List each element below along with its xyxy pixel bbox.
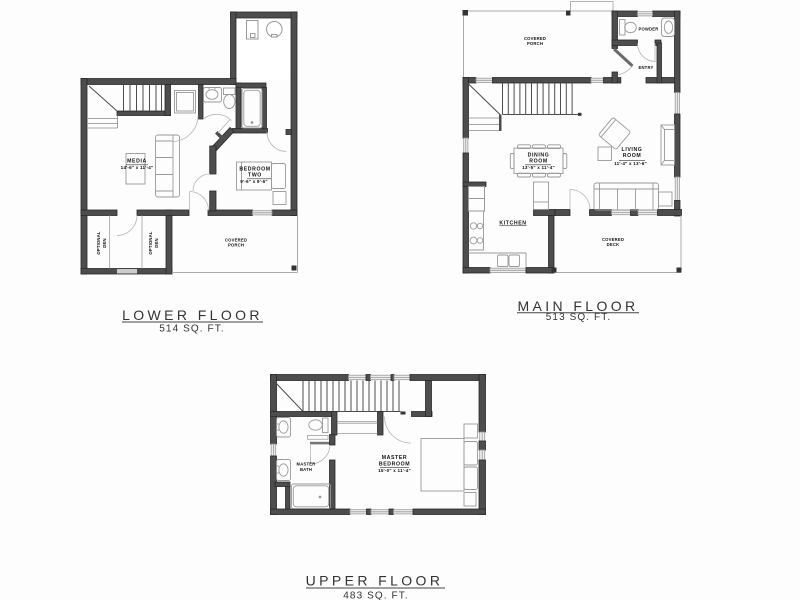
svg-text:MEDIA: MEDIA (127, 159, 147, 165)
svg-text:MASTER: MASTER (297, 462, 316, 467)
svg-text:PORCH: PORCH (228, 243, 244, 248)
svg-text:13'-5" x 11'-4": 13'-5" x 11'-4" (522, 165, 555, 170)
svg-text:TWO: TWO (248, 173, 262, 179)
svg-text:MASTER: MASTER (382, 455, 408, 461)
svg-text:ROOM: ROOM (529, 159, 548, 165)
svg-text:514 SQ. FT.: 514 SQ. FT. (159, 324, 224, 335)
svg-text:PORCH: PORCH (527, 41, 543, 46)
svg-text:DEN: DEN (102, 238, 107, 247)
svg-text:14'-6" x 11'-4": 14'-6" x 11'-4" (121, 165, 154, 170)
svg-text:LOWER FLOOR: LOWER FLOOR (122, 307, 263, 323)
svg-text:BEDROOM: BEDROOM (379, 462, 410, 468)
svg-text:ROOM: ROOM (623, 153, 642, 159)
svg-text:9'-6" x 9'-6": 9'-6" x 9'-6" (240, 179, 268, 184)
svg-text:DEN: DEN (154, 238, 159, 247)
svg-text:513 SQ. FT.: 513 SQ. FT. (546, 312, 611, 323)
svg-text:BATH: BATH (300, 467, 312, 472)
svg-text:POWDER: POWDER (638, 27, 658, 32)
svg-text:11'-4" x 13'-6": 11'-4" x 13'-6" (614, 161, 647, 166)
svg-text:OPTIONAL: OPTIONAL (148, 231, 153, 254)
svg-text:OPTIONAL: OPTIONAL (96, 231, 101, 254)
svg-text:483 SQ. FT.: 483 SQ. FT. (343, 591, 408, 600)
svg-text:KITCHEN: KITCHEN (499, 221, 526, 227)
svg-text:DECK: DECK (607, 242, 620, 247)
svg-text:ENTRY: ENTRY (638, 65, 653, 70)
svg-text:UPPER FLOOR: UPPER FLOOR (306, 573, 444, 589)
svg-text:15'-0" x 11'-4": 15'-0" x 11'-4" (378, 468, 411, 473)
